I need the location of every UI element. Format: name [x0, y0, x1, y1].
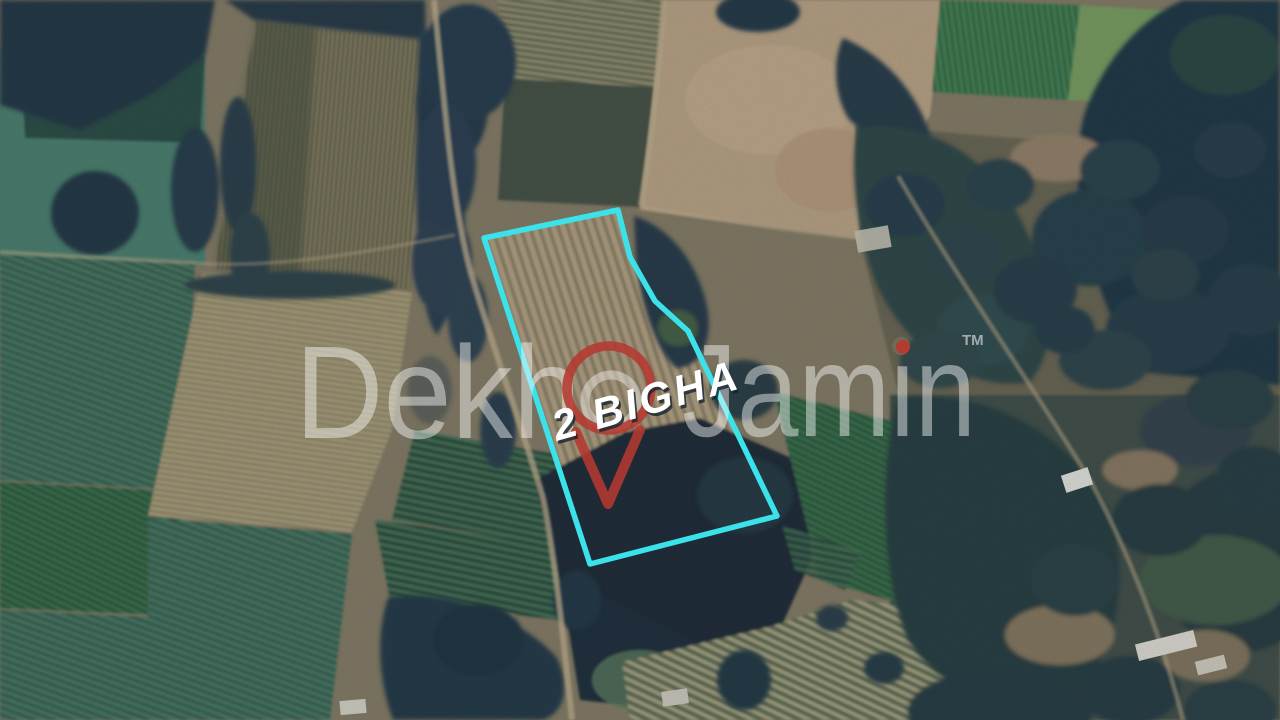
- svg-text:TM: TM: [962, 332, 984, 349]
- svg-text:Dekh: Dekh: [295, 319, 581, 466]
